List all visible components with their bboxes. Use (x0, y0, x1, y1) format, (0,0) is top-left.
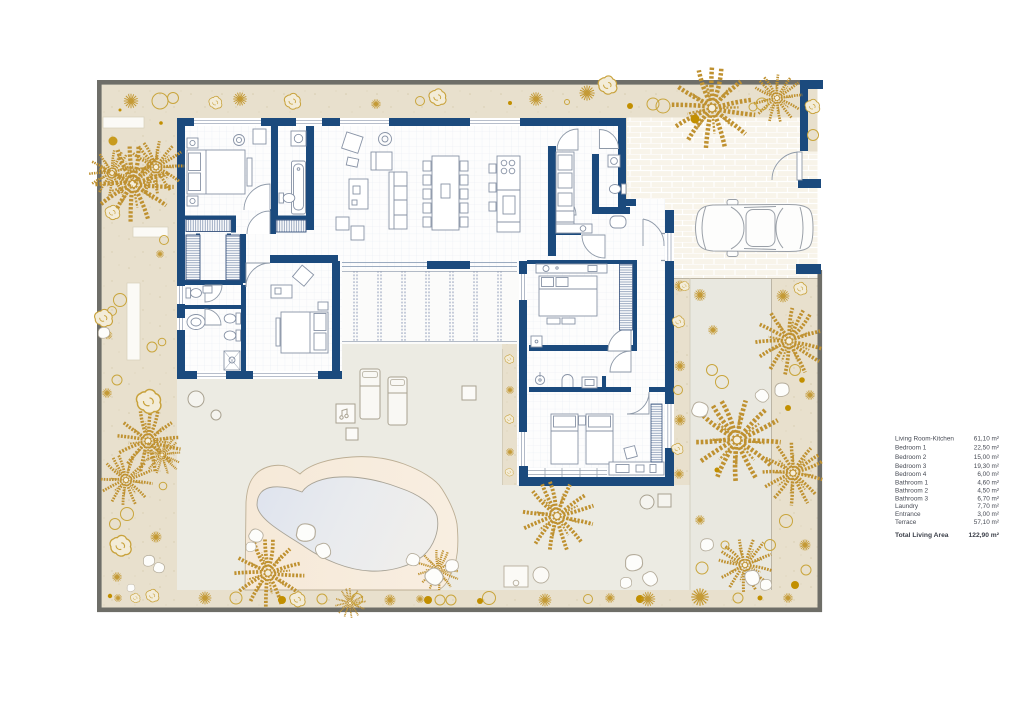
svg-text:Bedroom 3: Bedroom 3 (895, 463, 927, 470)
svg-text:122,90 m²: 122,90 m² (969, 532, 1000, 539)
svg-text:61,10 m²: 61,10 m² (974, 435, 999, 442)
svg-text:7,70 m²: 7,70 m² (977, 503, 999, 510)
svg-text:Total Living Area: Total Living Area (895, 532, 949, 539)
svg-text:Terrace: Terrace (895, 519, 917, 526)
svg-text:Bedroom 1: Bedroom 1 (895, 445, 927, 452)
svg-text:22,50 m²: 22,50 m² (974, 445, 999, 452)
svg-text:Living Room-Kitchen: Living Room-Kitchen (895, 435, 954, 442)
svg-text:Bedroom 2: Bedroom 2 (895, 454, 927, 461)
svg-text:19,30 m²: 19,30 m² (974, 463, 999, 470)
svg-text:4,50 m²: 4,50 m² (977, 487, 999, 494)
svg-text:15,00 m²: 15,00 m² (974, 454, 999, 461)
svg-text:57,10 m²: 57,10 m² (974, 519, 999, 526)
svg-text:6,70 m²: 6,70 m² (977, 495, 999, 502)
svg-text:Laundry: Laundry (895, 503, 919, 510)
svg-text:Bedroom 4: Bedroom 4 (895, 471, 927, 478)
svg-text:Entrance: Entrance (895, 511, 921, 518)
svg-text:Bathroom 2: Bathroom 2 (895, 487, 928, 494)
svg-text:Bathroom 1: Bathroom 1 (895, 479, 928, 486)
svg-text:3,00 m²: 3,00 m² (977, 511, 999, 518)
svg-text:Bathroom 3: Bathroom 3 (895, 495, 928, 502)
svg-text:4,60 m²: 4,60 m² (977, 479, 999, 486)
svg-text:6,00 m²: 6,00 m² (977, 471, 999, 478)
